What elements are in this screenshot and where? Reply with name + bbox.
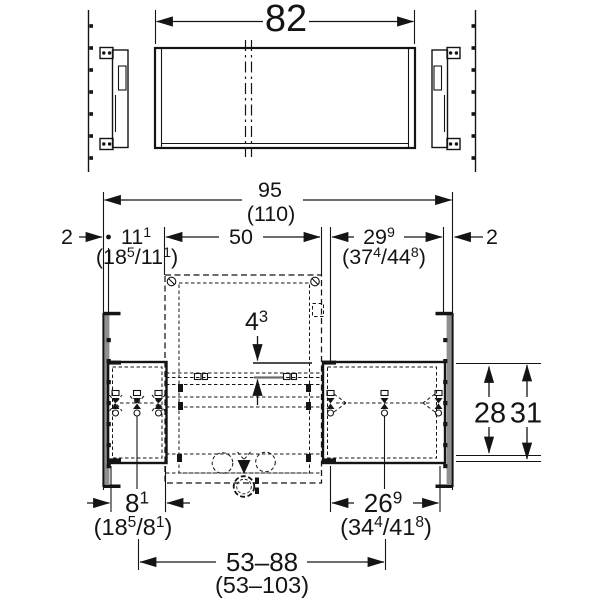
wall-line-left-top	[89, 10, 94, 172]
supply-box-left	[107, 361, 167, 489]
cover-panel	[155, 40, 415, 157]
dim-4-3-label: 43	[245, 308, 268, 336]
mounting-bracket-left	[100, 48, 128, 150]
dim-4-3: 43	[245, 308, 268, 405]
dim-29-9-alt-label: (374/448)	[342, 245, 426, 269]
technical-drawing: 82 95 (110) 2 111 (185/111)	[0, 0, 600, 600]
supply-box-right	[322, 361, 445, 489]
mounting-bracket-right	[432, 48, 460, 150]
dim-95-alt-label: (110)	[247, 202, 296, 226]
dim-50: 50	[165, 225, 322, 275]
dim-31-label: 31	[510, 398, 542, 430]
dim-8-1-alt-label: (185/81)	[94, 514, 173, 540]
dim-28-label: 28	[474, 398, 506, 430]
dim-82-label: 82	[265, 0, 307, 40]
installation-drawing-page: 82 95 (110) 2 111 (185/111)	[0, 0, 600, 600]
valve-symbols-left	[110, 391, 166, 417]
dim-95: 95 (110)	[104, 178, 453, 490]
dim-2-right: 2	[455, 225, 498, 249]
dim-82: 82	[156, 0, 415, 44]
wall-line-right-top	[472, 10, 476, 172]
drain-assembly	[212, 452, 275, 497]
dim-11-1: 111 (185/111)	[96, 225, 178, 269]
front-view-dimensions-top: 95 (110) 2 111 (185/111) 50	[61, 178, 498, 490]
dim-29-9: 299 (374/448)	[331, 225, 444, 362]
dim-50-label: 50	[229, 225, 253, 249]
frame-outline	[165, 275, 324, 483]
dim-28-31: 28 31	[456, 364, 542, 462]
dim-26-9-alt-label: (344/418)	[340, 514, 432, 540]
corner-screw-right	[311, 277, 320, 286]
dim-53-88-alt-label: (53–103)	[215, 572, 309, 598]
top-view: 82	[89, 0, 476, 172]
dim-26-9: 269 (344/418)	[331, 466, 441, 540]
front-view: 43	[87, 275, 542, 598]
dim-95-label: 95	[258, 178, 282, 202]
dim-11-1-alt-label: (185/111)	[96, 245, 178, 269]
dim-53-88: 53–88 (53–103)	[139, 539, 386, 598]
dim-2-right-label: 2	[486, 225, 498, 249]
corner-screw-left	[167, 277, 176, 286]
dim-2-left-label: 2	[61, 225, 73, 249]
